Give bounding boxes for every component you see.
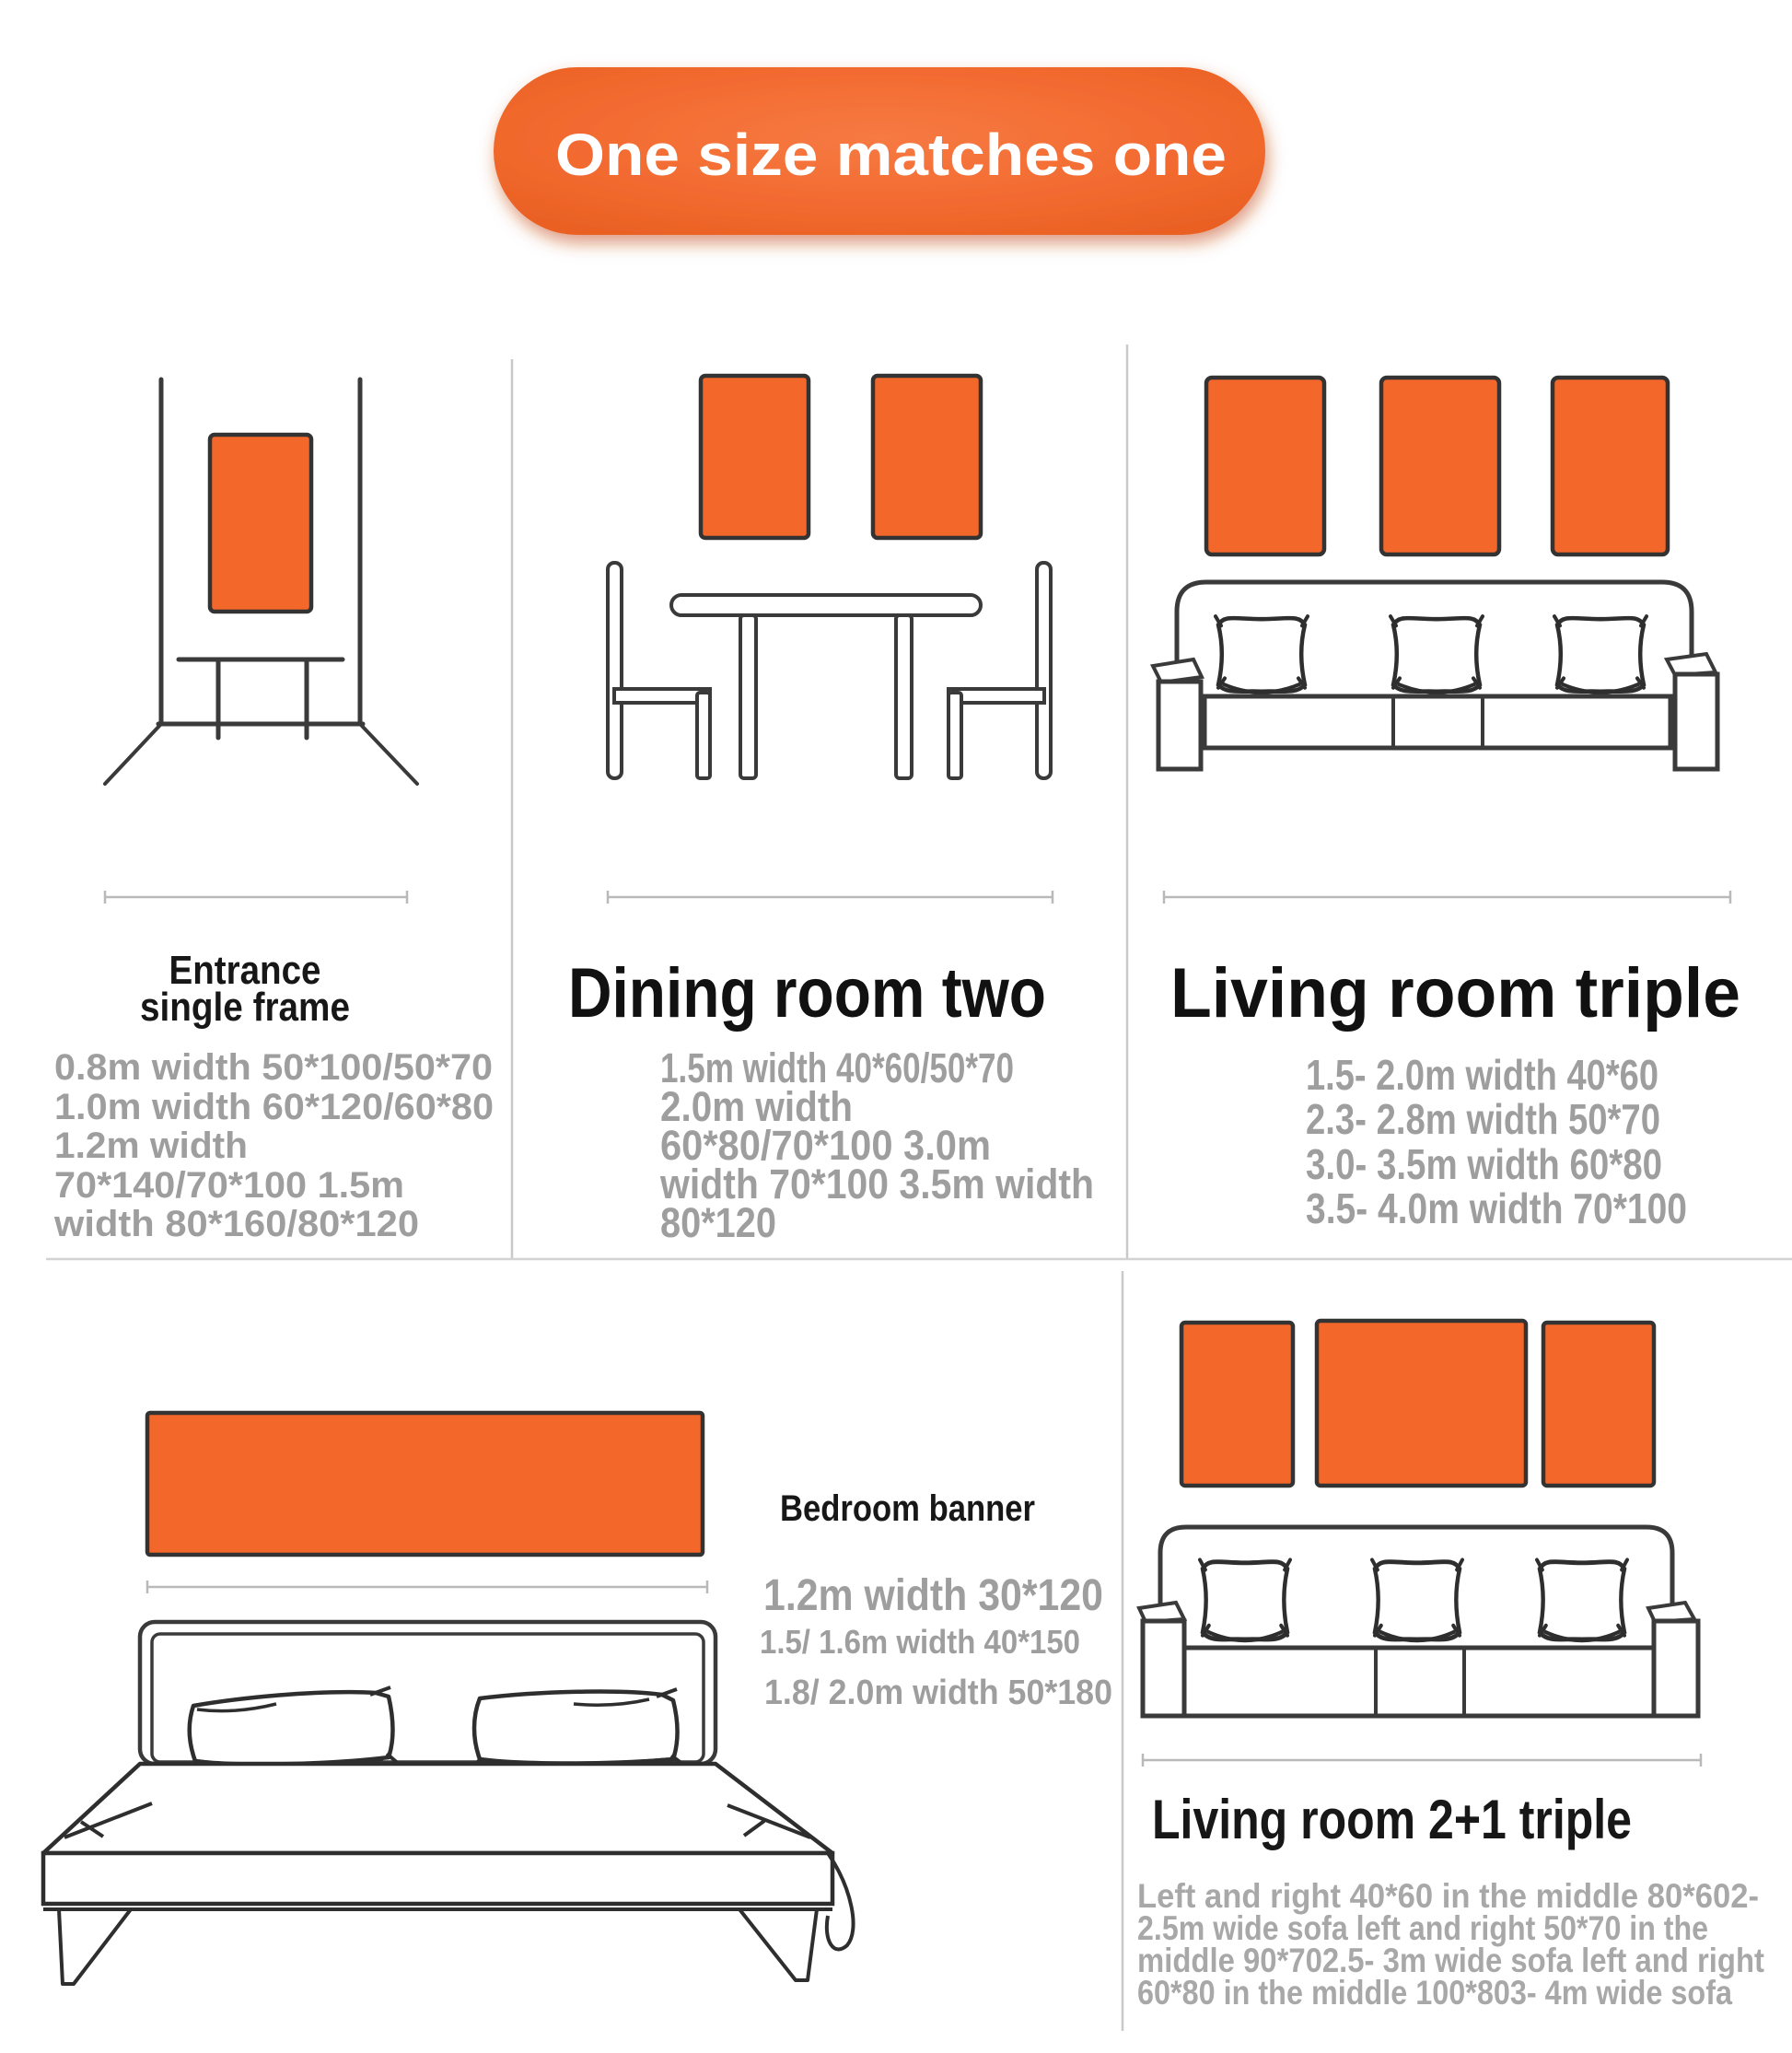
svg-text:2.3- 2.8m width 50*70: 2.3- 2.8m width 50*70 — [1306, 1095, 1660, 1143]
svg-text:1.5/ 1.6m width 40*150: 1.5/ 1.6m width 40*150 — [760, 1623, 1080, 1661]
svg-text:1.2m width: 1.2m width — [54, 1126, 248, 1166]
svg-text:1.5- 2.0m width 40*60: 1.5- 2.0m width 40*60 — [1306, 1051, 1658, 1099]
svg-text:One size matches one: One size matches one — [555, 122, 1227, 188]
svg-text:Bedroom banner: Bedroom banner — [780, 1488, 1035, 1529]
svg-text:1.2m width 30*120: 1.2m width 30*120 — [763, 1571, 1103, 1620]
svg-text:width 80*160/80*120: width 80*160/80*120 — [53, 1204, 419, 1244]
svg-text:single frame: single frame — [140, 985, 350, 1030]
svg-text:Dining room two: Dining room two — [568, 954, 1046, 1032]
svg-text:80*120: 80*120 — [660, 1199, 776, 1246]
svg-text:1.8/ 2.0m width 50*180: 1.8/ 2.0m width 50*180 — [764, 1674, 1112, 1712]
svg-text:0.8m width 50*100/50*70: 0.8m width 50*100/50*70 — [54, 1047, 493, 1088]
svg-text:3.5- 4.0m width 70*100: 3.5- 4.0m width 70*100 — [1306, 1184, 1687, 1232]
svg-text:1.0m width 60*120/60*80: 1.0m width 60*120/60*80 — [54, 1087, 494, 1127]
svg-text:Living room 2+1 triple: Living room 2+1 triple — [1152, 1789, 1632, 1850]
svg-text:60*80 in the middle 100*803- 4: 60*80 in the middle 100*803- 4m wide sof… — [1137, 1974, 1732, 2012]
svg-text:3.0- 3.5m width 60*80: 3.0- 3.5m width 60*80 — [1306, 1140, 1662, 1188]
svg-text:Living room triple: Living room triple — [1170, 954, 1740, 1032]
svg-text:70*140/70*100 1.5m: 70*140/70*100 1.5m — [54, 1165, 404, 1206]
